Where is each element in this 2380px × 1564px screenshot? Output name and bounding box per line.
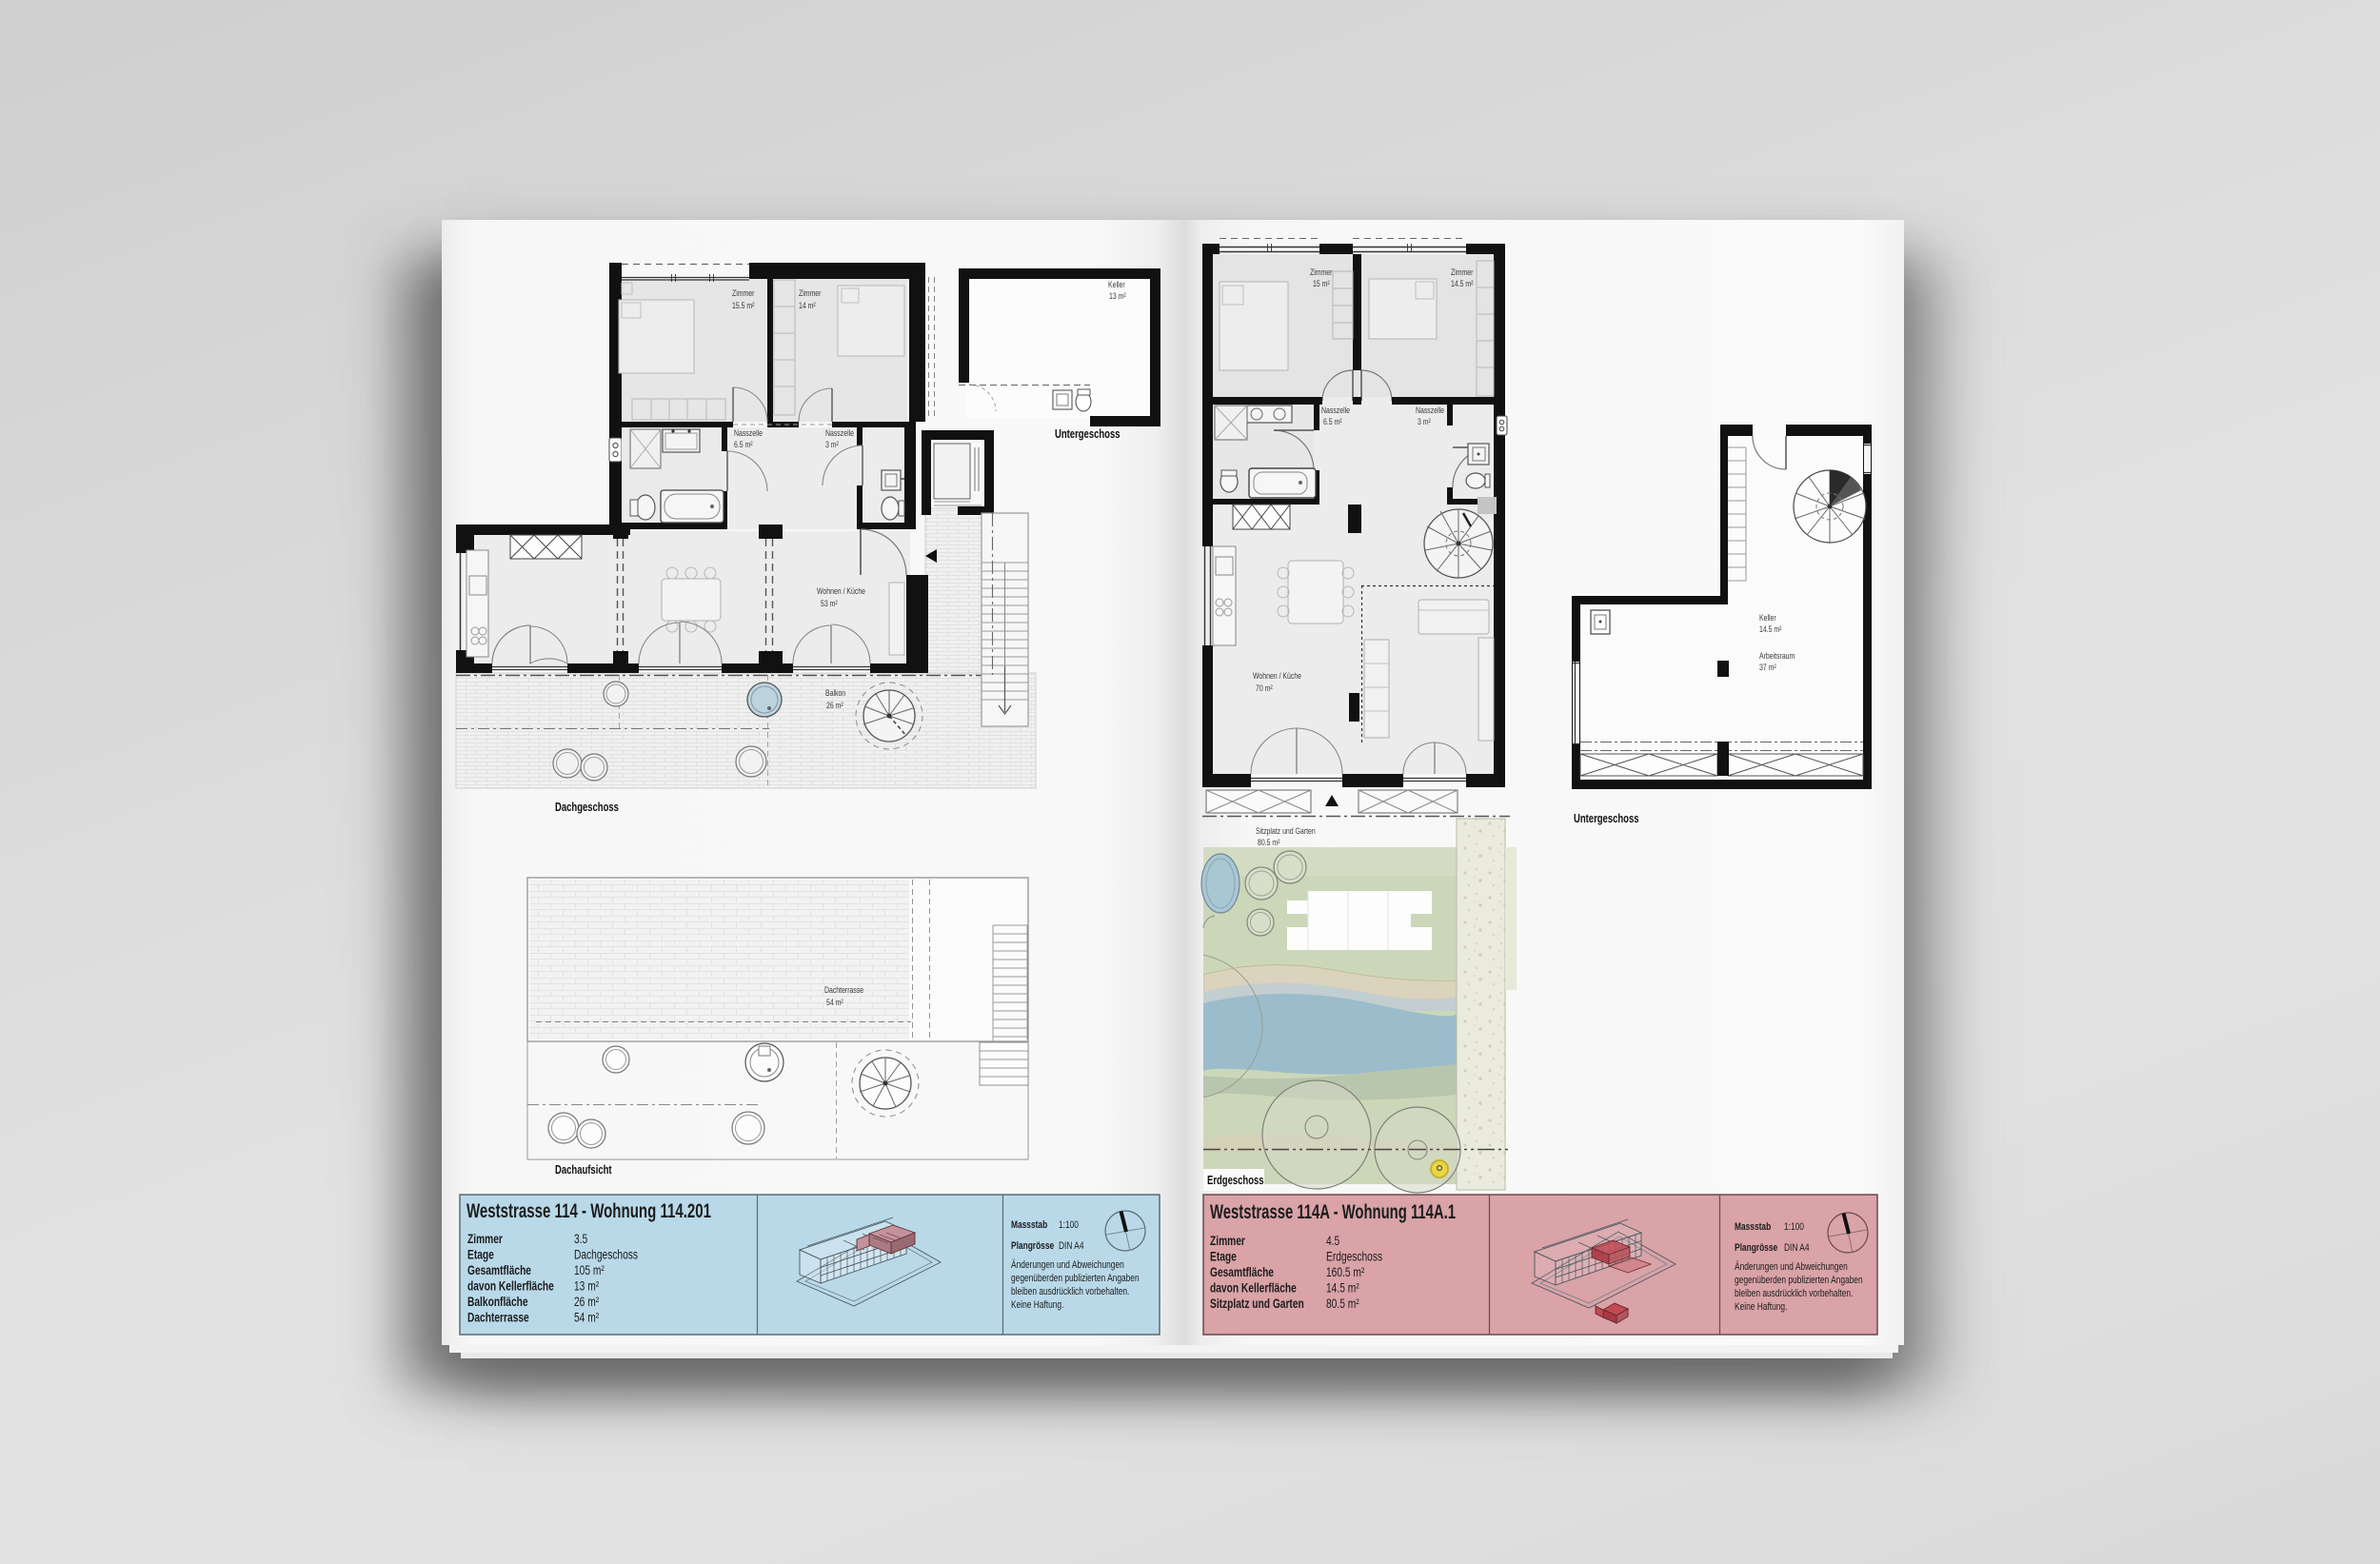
svg-text:26 m²: 26 m² <box>826 700 843 710</box>
svg-text:80.5 m²: 80.5 m² <box>1258 837 1280 847</box>
svg-text:Sitzplatz und Garten: Sitzplatz und Garten <box>1210 1296 1304 1311</box>
svg-text:14.5 m²: 14.5 m² <box>1451 278 1474 288</box>
svg-text:Dachaufsicht: Dachaufsicht <box>555 1164 612 1178</box>
svg-text:14.5 m²: 14.5 m² <box>1759 624 1782 634</box>
svg-text:Weststrasse 114A - Wohnung 114: Weststrasse 114A - Wohnung 114A.1 <box>1210 1201 1456 1223</box>
svg-text:DIN A4: DIN A4 <box>1784 1242 1810 1255</box>
svg-text:Dachgeschoss: Dachgeschoss <box>574 1247 638 1262</box>
svg-text:Zimmer: Zimmer <box>1451 267 1474 277</box>
svg-text:14.5 m²: 14.5 m² <box>1326 1280 1359 1296</box>
svg-text:Massstab: Massstab <box>1011 1219 1047 1232</box>
svg-text:Dachterrasse: Dachterrasse <box>467 1310 529 1325</box>
svg-text:Arbeitsraum: Arbeitsraum <box>1759 650 1795 661</box>
svg-text:Nasszelle: Nasszelle <box>1416 405 1444 415</box>
svg-text:Weststrasse 114 - Wohnung 114.: Weststrasse 114 - Wohnung 114.201 <box>466 1200 711 1222</box>
svg-text:1:100: 1:100 <box>1059 1219 1079 1232</box>
svg-text:Keller: Keller <box>1759 612 1776 623</box>
svg-text:15 m²: 15 m² <box>1313 278 1330 288</box>
svg-text:Balkonfläche: Balkonfläche <box>467 1294 528 1309</box>
svg-text:Plangrösse: Plangrösse <box>1735 1242 1778 1255</box>
svg-text:105 m²: 105 m² <box>574 1262 605 1277</box>
svg-text:Gesamtfläche: Gesamtfläche <box>467 1262 531 1277</box>
svg-text:gegenüberden publizierten Anga: gegenüberden publizierten Angaben <box>1011 1273 1140 1285</box>
svg-text:Gesamtfläche: Gesamtfläche <box>1210 1264 1274 1279</box>
svg-text:160.5 m²: 160.5 m² <box>1326 1264 1364 1279</box>
svg-text:Zimmer: Zimmer <box>732 287 755 298</box>
svg-text:Änderungen und Abweichungen: Änderungen und Abweichungen <box>1011 1258 1124 1272</box>
svg-text:6.5 m²: 6.5 m² <box>1323 416 1342 426</box>
svg-text:15.5 m²: 15.5 m² <box>732 300 755 310</box>
svg-text:3.5: 3.5 <box>574 1231 587 1246</box>
svg-text:Keine Haftung.: Keine Haftung. <box>1011 1299 1063 1312</box>
svg-text:Dachgeschoss: Dachgeschoss <box>555 802 619 815</box>
svg-text:Nasszelle: Nasszelle <box>1321 405 1350 415</box>
svg-text:13 m²: 13 m² <box>1109 290 1126 301</box>
svg-text:Wohnen / Küche: Wohnen / Küche <box>1253 670 1301 681</box>
svg-text:26 m²: 26 m² <box>574 1294 599 1309</box>
svg-text:53 m²: 53 m² <box>821 598 838 608</box>
svg-text:Zimmer: Zimmer <box>1210 1233 1245 1248</box>
svg-text:Erdgeschoss: Erdgeschoss <box>1326 1249 1382 1264</box>
svg-text:4.5: 4.5 <box>1326 1233 1339 1248</box>
svg-text:Etage: Etage <box>467 1247 494 1262</box>
svg-text:bleiben ausdrücklich vorbehalt: bleiben ausdrücklich vorbehalten. <box>1011 1286 1129 1298</box>
svg-text:Etage: Etage <box>1210 1249 1237 1264</box>
svg-text:bleiben ausdrücklich vorbehalt: bleiben ausdrücklich vorbehalten. <box>1735 1288 1853 1300</box>
svg-text:DIN A4: DIN A4 <box>1059 1240 1084 1253</box>
svg-text:gegenüberden publizierten Anga: gegenüberden publizierten Angaben <box>1735 1275 1863 1287</box>
svg-text:Keller: Keller <box>1108 279 1125 289</box>
svg-text:6.5 m²: 6.5 m² <box>734 439 753 449</box>
svg-text:Zimmer: Zimmer <box>799 287 822 298</box>
svg-text:Wohnen / Küche: Wohnen / Küche <box>817 585 865 596</box>
svg-text:Untergeschoss: Untergeschoss <box>1055 428 1121 442</box>
svg-text:37 m²: 37 m² <box>1759 662 1776 672</box>
svg-text:davon Kellerfläche: davon Kellerfläche <box>1210 1280 1297 1296</box>
svg-text:Balkon: Balkon <box>825 687 845 698</box>
svg-text:Keine Haftung.: Keine Haftung. <box>1735 1301 1787 1314</box>
svg-text:3 m²: 3 m² <box>1418 416 1431 426</box>
svg-text:Nasszelle: Nasszelle <box>734 427 763 438</box>
svg-text:davon Kellerfläche: davon Kellerfläche <box>467 1278 554 1294</box>
svg-text:54 m²: 54 m² <box>826 997 843 1007</box>
svg-text:14 m²: 14 m² <box>799 300 816 310</box>
svg-text:54 m²: 54 m² <box>574 1310 599 1325</box>
svg-text:Massstab: Massstab <box>1735 1221 1771 1234</box>
svg-text:3 m²: 3 m² <box>825 439 839 449</box>
svg-text:13 m²: 13 m² <box>574 1278 599 1294</box>
svg-text:Zimmer: Zimmer <box>1310 267 1333 277</box>
svg-text:1:100: 1:100 <box>1784 1221 1804 1234</box>
svg-text:Nasszelle: Nasszelle <box>825 427 854 438</box>
svg-text:70 m²: 70 m² <box>1256 683 1273 693</box>
svg-text:Änderungen und Abweichungen: Änderungen und Abweichungen <box>1735 1260 1848 1274</box>
svg-text:Plangrösse: Plangrösse <box>1011 1240 1055 1253</box>
svg-text:Untergeschoss: Untergeschoss <box>1574 813 1639 826</box>
svg-text:80.5 m²: 80.5 m² <box>1326 1296 1359 1311</box>
svg-text:Erdgeschoss: Erdgeschoss <box>1207 1175 1264 1188</box>
svg-text:Zimmer: Zimmer <box>467 1231 503 1246</box>
svg-text:Sitzplatz und Garten: Sitzplatz und Garten <box>1256 825 1316 836</box>
svg-text:Dachterrasse: Dachterrasse <box>824 984 863 995</box>
